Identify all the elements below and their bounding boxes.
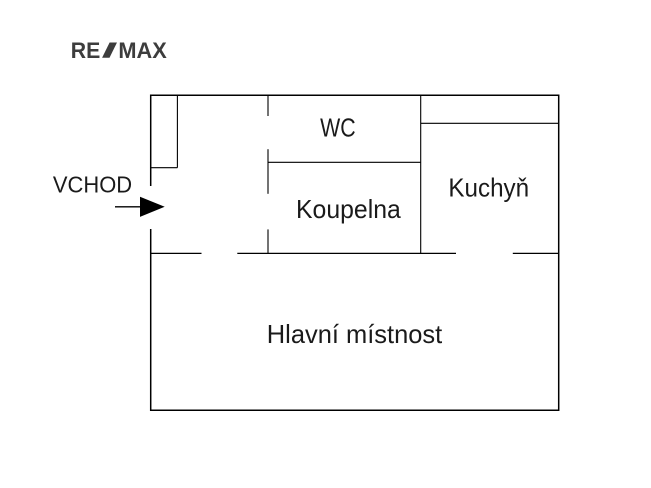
svg-text:Kuchyň: Kuchyň (448, 173, 529, 203)
svg-text:VCHOD: VCHOD (53, 172, 132, 198)
svg-text:MAX: MAX (118, 38, 167, 63)
svg-text:WC: WC (320, 113, 356, 143)
svg-text:RE: RE (71, 38, 101, 63)
svg-text:Hlavní místnost: Hlavní místnost (267, 319, 443, 349)
svg-text:Koupelna: Koupelna (296, 194, 401, 224)
